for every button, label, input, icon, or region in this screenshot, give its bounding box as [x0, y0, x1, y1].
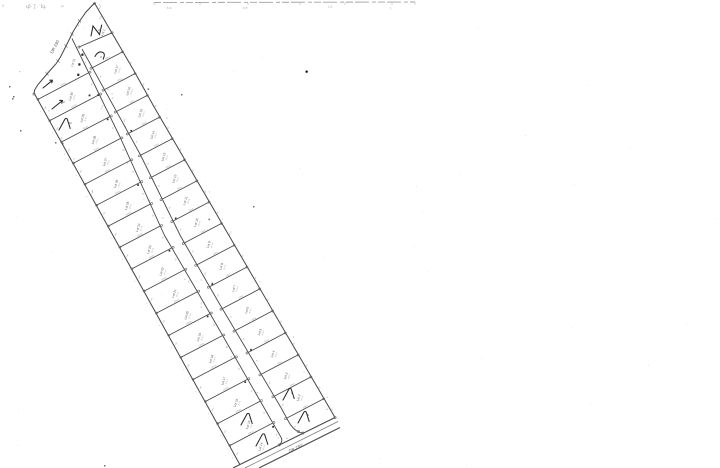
svg-text:· 4 a: · 4 a — [164, 6, 171, 10]
svg-text:: |: : | — [389, 6, 392, 10]
svg-text:ɥʇ·˙ĵ ·˙ʇɥ.: ɥʇ·˙ĵ ·˙ʇɥ. — [26, 4, 47, 10]
svg-text:a ɘ: a ɘ — [243, 6, 248, 10]
svg-text:23: 23 — [68, 121, 72, 125]
svg-text:}: } — [99, 4, 101, 10]
svg-text:4 8: 4 8 — [328, 5, 333, 9]
